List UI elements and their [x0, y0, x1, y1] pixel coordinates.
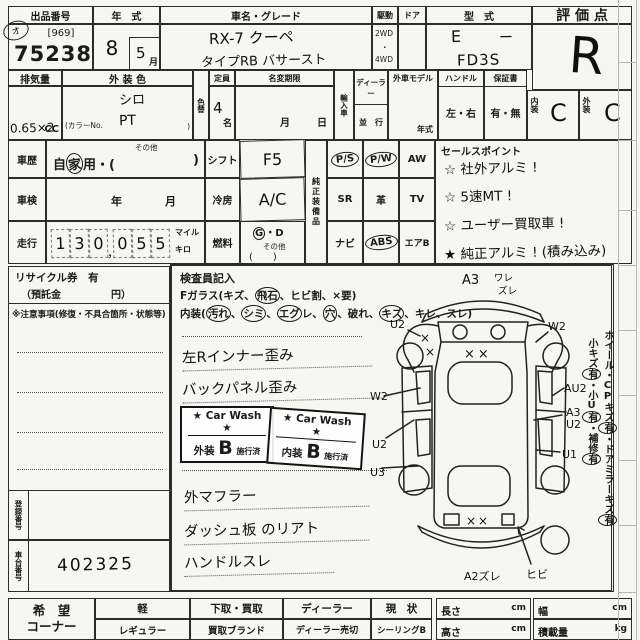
- drive-4wd: 4WD: [375, 55, 393, 64]
- car-name-line1: RX-7 クーペ: [209, 26, 294, 49]
- foreign-model-year: 年式: [417, 124, 433, 135]
- registration-no-cell: 登録番号: [8, 490, 170, 540]
- interior-grade: C: [550, 99, 567, 127]
- chassis-no-cell: 車台番号 402325: [8, 540, 170, 592]
- damage-label-hibi: ヒビ: [526, 568, 548, 581]
- fuel-cell: G・D その他 ( ): [240, 221, 305, 264]
- corner-col-sealingb: シーリングB: [371, 619, 432, 640]
- import-label: 輸入車: [334, 70, 354, 140]
- caution-label: ※注意事項(修復・不具合箇所・状態等): [12, 308, 166, 320]
- mileage-digit: 0: [89, 229, 109, 258]
- mileage-digit: 5: [151, 229, 171, 258]
- dealer-parallel-cell: ディーラー 並 行: [354, 70, 388, 140]
- mileage-cell: 1 3 0 ， 0 5 5 マイル キロ: [46, 221, 205, 264]
- interior-label: 内装: [529, 97, 540, 113]
- capacity-unit: 名: [223, 116, 232, 129]
- corner-col-kaitori-brand: 買取ブランド: [190, 619, 283, 640]
- displacement-header: 排気量: [8, 70, 62, 86]
- displacement-unit: CC: [44, 124, 59, 135]
- ari-circled: 有: [582, 368, 601, 380]
- ari-circled: 有: [582, 453, 601, 465]
- exterior-grade-cell: 外装 C: [579, 90, 632, 140]
- edge-tick: [619, 460, 636, 461]
- carwash-title: ★ Car Wash ★: [188, 410, 266, 436]
- damage-label-w2-left: W2: [370, 390, 388, 403]
- displacement-cell: 0.65×2 CC: [8, 86, 62, 140]
- interior-token-circled: 汚れ: [206, 305, 231, 322]
- edge-tick: [619, 330, 636, 331]
- year-header: 年 式: [93, 6, 160, 24]
- damage-label-a2zure: A2ズレ: [464, 569, 501, 583]
- color-change-label: 色替: [193, 70, 209, 140]
- edge-tick: [619, 210, 636, 211]
- equip-pw: P/W: [363, 140, 399, 178]
- car-name-header: 車名・グレード: [160, 6, 372, 24]
- history-label: 車歴: [8, 140, 46, 178]
- right-side: [536, 366, 566, 492]
- edge-line: [636, 0, 637, 640]
- month-unit: 月: [149, 55, 158, 68]
- headlight: [453, 325, 467, 339]
- inspector-title: 検査員記入: [180, 270, 235, 286]
- model-cell: E ー FD3S: [426, 24, 532, 70]
- color-value-1: シロ: [119, 89, 146, 109]
- damage-label-u2-front-left: U2: [390, 318, 405, 331]
- warranty-cell: 保証書 有・無: [484, 70, 527, 140]
- edge-tick: [619, 140, 636, 141]
- interior-grade-cell: 内装 C: [527, 90, 579, 140]
- glass-token: 、ヒビ割、×要): [280, 290, 357, 302]
- chassis-no-label: 車台番号: [9, 541, 29, 591]
- equip-navi: ナビ: [327, 221, 363, 264]
- mileage-unit-km: キロ: [175, 244, 191, 255]
- interior-token: レ、: [302, 308, 323, 320]
- taillight: [444, 514, 459, 525]
- damage-label-u2-right: U2: [566, 418, 581, 431]
- capacity-cell: 4 名: [209, 86, 235, 140]
- load-label: 積載量: [538, 624, 568, 639]
- sales-point: ☆ 社外アルミ !: [444, 156, 538, 178]
- door-cell: [398, 24, 426, 70]
- carwash-stamp-exterior: ★ Car Wash ★ 外装 B 施行済: [180, 406, 274, 463]
- color-no-suffix: ): [187, 122, 190, 131]
- damage-label-w2-front-right: W2: [548, 320, 566, 333]
- drive-dot: ・: [381, 42, 389, 53]
- equip-ps: P/S: [327, 140, 363, 178]
- damage-label-u1-right: U1: [562, 448, 577, 461]
- auction-bracket: [969]: [33, 26, 89, 40]
- length-unit: cm: [511, 603, 526, 613]
- length-label: 長さ: [441, 603, 461, 618]
- ac-label: 冷房: [205, 178, 240, 221]
- corner-line1: 希 望: [33, 603, 71, 619]
- handle-cell: ハンドル 左・右: [438, 70, 484, 140]
- score-value: R: [567, 26, 606, 86]
- equip-aw: AW: [399, 140, 435, 178]
- width-unit: cm: [612, 603, 627, 613]
- edge-tick: [619, 525, 636, 526]
- edge-tick: [619, 62, 636, 63]
- equip-sr: SR: [327, 178, 363, 221]
- damage-diagram: A3 ワレ ズレ U2 × × W2 ×× W2 U2 U3 AU2 A3 U2…: [368, 268, 600, 598]
- handle-label: ハンドル: [439, 71, 483, 87]
- shift-label: シフト: [205, 140, 240, 178]
- interior-token: 内装(: [180, 308, 206, 320]
- mileage-label: 走行: [8, 221, 46, 264]
- interior-token-circled: エグ: [277, 305, 302, 322]
- auction-sheet: 出品番号 年 式 車名・グレード 駆動 ドア 型 式 評 価 点 [969] 7…: [0, 0, 640, 640]
- score-cell: R: [532, 24, 632, 90]
- name-change-month: 月: [280, 114, 290, 129]
- shift-value: F5: [240, 139, 306, 179]
- blank-line: [17, 352, 163, 353]
- year-cell: 8 5 月: [93, 24, 160, 70]
- blank-line: [17, 432, 163, 433]
- equip-tv: TV: [399, 178, 435, 221]
- auction-number: 75238: [15, 39, 91, 69]
- capacity-value: 4: [213, 99, 223, 117]
- capacity-header: 定員: [209, 70, 235, 86]
- ari-circled: 有: [582, 411, 601, 423]
- edge-line: [618, 0, 619, 640]
- fuel-label: 燃料: [205, 221, 240, 264]
- drive-cell: 2WD ・ 4WD: [372, 24, 398, 70]
- dealer-label: ディーラー: [355, 71, 387, 105]
- drive-header: 駆動: [372, 6, 398, 24]
- auction-no-cell: [969] 75238 オ: [8, 24, 93, 70]
- recycle-cell: リサイクル券 有 （預託金 円）: [8, 266, 170, 304]
- carwash-grade: B: [218, 437, 232, 459]
- taillight: [502, 514, 514, 525]
- history-cell: その他 自家用・( ): [46, 140, 205, 178]
- sales-points-cell: セールスポイント ☆ 社外アルミ ! ☆ 5速MT ! ☆ ユーザー買取車 ! …: [435, 140, 632, 264]
- corner-line2: コーナー: [26, 619, 76, 635]
- blank-line: [17, 392, 163, 393]
- carwash-stamp-interior: ★ Car Wash ★ 内装 B 施行済: [266, 407, 366, 471]
- warranty-options: 有・無: [485, 87, 526, 137]
- fuel-diesel: ・D: [265, 228, 283, 239]
- corner-cell: 希 望 コーナー: [8, 598, 95, 640]
- interior-token: 、: [266, 308, 277, 320]
- interior-token-circled: 穴: [323, 305, 338, 322]
- height-label: 高さ: [441, 624, 461, 639]
- inspection-month: 月: [165, 193, 176, 209]
- door-header: ドア: [398, 6, 426, 24]
- mileage-digit: 3: [70, 229, 90, 258]
- chassis-no-value: 402325: [57, 554, 134, 576]
- year-value: 8: [96, 31, 129, 66]
- recycle-line2: （預託金 円）: [21, 286, 131, 301]
- inspection-cell: 年 月: [46, 178, 205, 221]
- color-value-2: PT: [119, 113, 136, 129]
- blank-line: [182, 470, 387, 471]
- sales-point: ☆ ユーザー買取車 !: [444, 211, 565, 234]
- exterior-label: 外装: [581, 97, 592, 113]
- model-dash: ー: [499, 27, 514, 47]
- edge-tick: [619, 592, 636, 593]
- color-header: 外 装 色: [62, 70, 193, 86]
- handle-options: 左・右: [439, 87, 483, 137]
- ac-value: A/C: [239, 177, 305, 222]
- equip-leather: 革: [363, 178, 399, 221]
- recycle-line1: リサイクル券 有: [15, 270, 98, 285]
- inspector-note: 外マフラー: [184, 482, 370, 512]
- glass-token-circled: 飛石: [255, 287, 280, 304]
- sales-point: ☆ 5速MT !: [444, 184, 513, 206]
- parallel-label: 並 行: [355, 105, 387, 139]
- carwash-status: 施行済: [236, 447, 260, 456]
- x-mark: ×: [420, 331, 430, 345]
- rear-window: [448, 466, 510, 506]
- model-fd3s: FD3S: [457, 50, 501, 69]
- x-mark: ×: [425, 345, 435, 359]
- edge-tick: [619, 395, 636, 396]
- color-cell: (カラーNo. ) シロ PT: [62, 86, 193, 140]
- front-bumper: [426, 301, 540, 314]
- month-subcell: 5 月: [129, 37, 161, 71]
- registration-no-label: 登録番号: [9, 491, 29, 539]
- blank-line: [182, 336, 362, 337]
- sales-point: ★ 純正アルミ ! (積み込み): [444, 239, 607, 263]
- interior-token: 、: [231, 308, 242, 320]
- foreign-model-label: 外車モデル: [389, 73, 437, 84]
- inspection-year: 年: [111, 193, 122, 209]
- car-name-cell: RX-7 クーペ タイプRB バサースト: [160, 24, 372, 70]
- carwash-title: ★ Car Wash ★: [276, 411, 358, 443]
- inspector-note: ハンドルスレ: [184, 548, 335, 577]
- body-outline: [434, 342, 528, 528]
- height-cell: 高さ cm: [436, 619, 531, 640]
- corner-col-shitadori: 下取・買取: [190, 598, 283, 619]
- blank-line: [17, 469, 163, 470]
- inspector-note: ダッシュ板 のリアト: [184, 516, 370, 546]
- damage-label-zure: ズレ: [498, 285, 517, 297]
- corner-col-regular: レギュラー: [95, 619, 190, 640]
- inspection-label: 車検: [8, 178, 46, 221]
- damage-label-u3-left: U3: [370, 466, 385, 479]
- month-value: 5: [136, 44, 146, 62]
- corner-col-kei: 軽: [95, 598, 190, 619]
- history-other-label: その他: [135, 142, 158, 153]
- equip-abs: ABS: [363, 221, 399, 264]
- carwash-area: 外装: [194, 445, 215, 457]
- spare-tire: [541, 526, 569, 554]
- fuel-gasoline: G: [253, 227, 265, 240]
- margin-annotation-2: 小キズ有・小U有・補修有: [582, 338, 601, 538]
- hood-xx-mark: ××: [464, 347, 492, 362]
- width-label: 幅: [538, 603, 548, 618]
- height-unit: cm: [511, 624, 526, 634]
- model-e: E: [451, 27, 462, 46]
- edge-tick: [619, 265, 636, 266]
- drive-2wd: 2WD: [375, 29, 393, 38]
- mileage-digit: 0: [113, 229, 133, 258]
- history-circled: 家: [65, 152, 85, 175]
- inspector-note: 左Rインナー歪み: [182, 342, 373, 372]
- rear-xx-mark: ××: [466, 514, 490, 528]
- history-paren-close: ): [193, 153, 199, 168]
- equipment-label: 純正装備品: [305, 140, 327, 264]
- name-change-day: 日: [317, 114, 327, 129]
- mileage-unit-mile: マイル: [175, 227, 199, 238]
- nose-panel: [438, 322, 528, 342]
- carwash-grade: B: [306, 440, 322, 463]
- corner-col-dealer: ディーラー: [283, 598, 371, 619]
- foreign-model-cell: 外車モデル 年式: [388, 70, 438, 140]
- windshield: [448, 362, 512, 404]
- warranty-label: 保証書: [485, 71, 526, 87]
- equip-airbag: エアB: [399, 221, 435, 264]
- mileage-digit: 1: [51, 229, 71, 258]
- model-header: 型 式: [426, 6, 532, 24]
- color-no-prefix: (カラーNo.: [65, 120, 103, 131]
- load-unit: kg: [615, 624, 627, 634]
- damage-label-u2-left: U2: [372, 438, 387, 451]
- mileage-digit: 5: [132, 229, 152, 258]
- carwash-status: 施行済: [324, 452, 349, 463]
- name-change-header: 名変期限: [235, 70, 334, 86]
- score-header: 評 価 点: [532, 6, 632, 24]
- glass-condition-line: Fガラス(キズ、飛石、ヒビ割、×要): [180, 287, 356, 304]
- car-name-line2: タイプRB バサースト: [201, 48, 327, 70]
- fuel-other-paren: ( ): [249, 248, 277, 263]
- history-value: 自家用・(: [53, 153, 115, 174]
- headlight: [491, 325, 505, 339]
- inspector-note: バックパネル歪み: [182, 373, 383, 403]
- name-change-cell: 月 日: [235, 86, 334, 140]
- carwash-area: 内装: [281, 447, 303, 460]
- interior-token-circled: シミ: [241, 305, 266, 322]
- glass-token: Fガラス(キズ、: [180, 290, 255, 302]
- damage-label-a3-front: A3: [462, 273, 479, 288]
- corner-col-dealer-urikiri: ディーラー売切: [283, 619, 371, 640]
- corner-col-genjo: 現 状: [371, 598, 432, 619]
- damage-label-ware: ワレ: [494, 273, 513, 284]
- length-cell: 長さ cm: [436, 598, 531, 619]
